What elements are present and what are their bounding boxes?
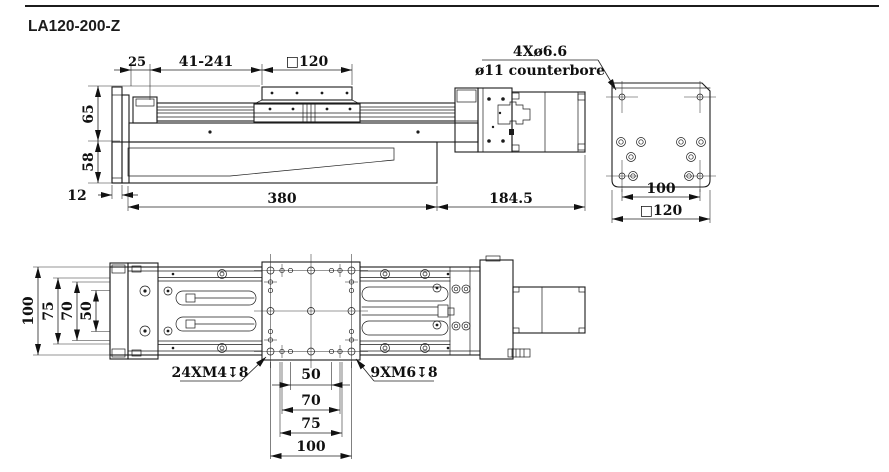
dim-plan-bottom-75: 75 xyxy=(301,416,320,432)
dim-plan-bottom-100: 100 xyxy=(296,439,325,455)
dim-end-hole-span-100: 100 xyxy=(646,181,675,197)
dim-base-380: 380 xyxy=(267,191,296,207)
label-m4-threads: 24XM4↧8 xyxy=(171,365,248,381)
dim-height-65: 65 xyxy=(81,104,97,123)
front-view xyxy=(112,87,585,183)
front-view-dimensions: 25 41-241 □120 4Xø6.6 ø11 counterbore 65… xyxy=(67,44,616,211)
dim-plan-left-100: 100 xyxy=(21,296,37,325)
dim-stroke-range: 41-241 xyxy=(179,54,234,70)
plan-view xyxy=(110,254,585,368)
label-m6-threads: 9XM6↧8 xyxy=(370,365,437,381)
page-title: LA120-200-Z xyxy=(28,18,121,35)
callout-counterbore: ø11 counterbore xyxy=(475,63,605,79)
callout-hole-count: 4Xø6.6 xyxy=(513,44,567,60)
dim-plan-left-70: 70 xyxy=(60,301,76,321)
dim-carriage-square-120: □120 xyxy=(286,54,329,70)
dim-plan-bottom-50: 50 xyxy=(301,367,321,383)
dim-plan-left-50: 50 xyxy=(79,301,95,321)
dim-plan-left-75: 75 xyxy=(41,301,57,320)
end-view: 100 □120 xyxy=(606,81,716,223)
plan-view-dimensions: 100 75 70 50 50 70 75 100 24XM4↧8 9XM6↧8 xyxy=(21,267,438,459)
technical-drawing: LA120-200-Z xyxy=(0,0,889,472)
drawing-page: LA120-200-Z xyxy=(0,0,889,472)
dim-offset-25: 25 xyxy=(128,55,146,70)
dim-end-plate-120: □120 xyxy=(640,203,683,219)
dim-height-58: 58 xyxy=(81,152,97,171)
dim-overhang-184-5: 184.5 xyxy=(489,191,533,207)
dim-plate-12: 12 xyxy=(67,188,86,204)
dim-plan-bottom-70: 70 xyxy=(301,393,321,409)
